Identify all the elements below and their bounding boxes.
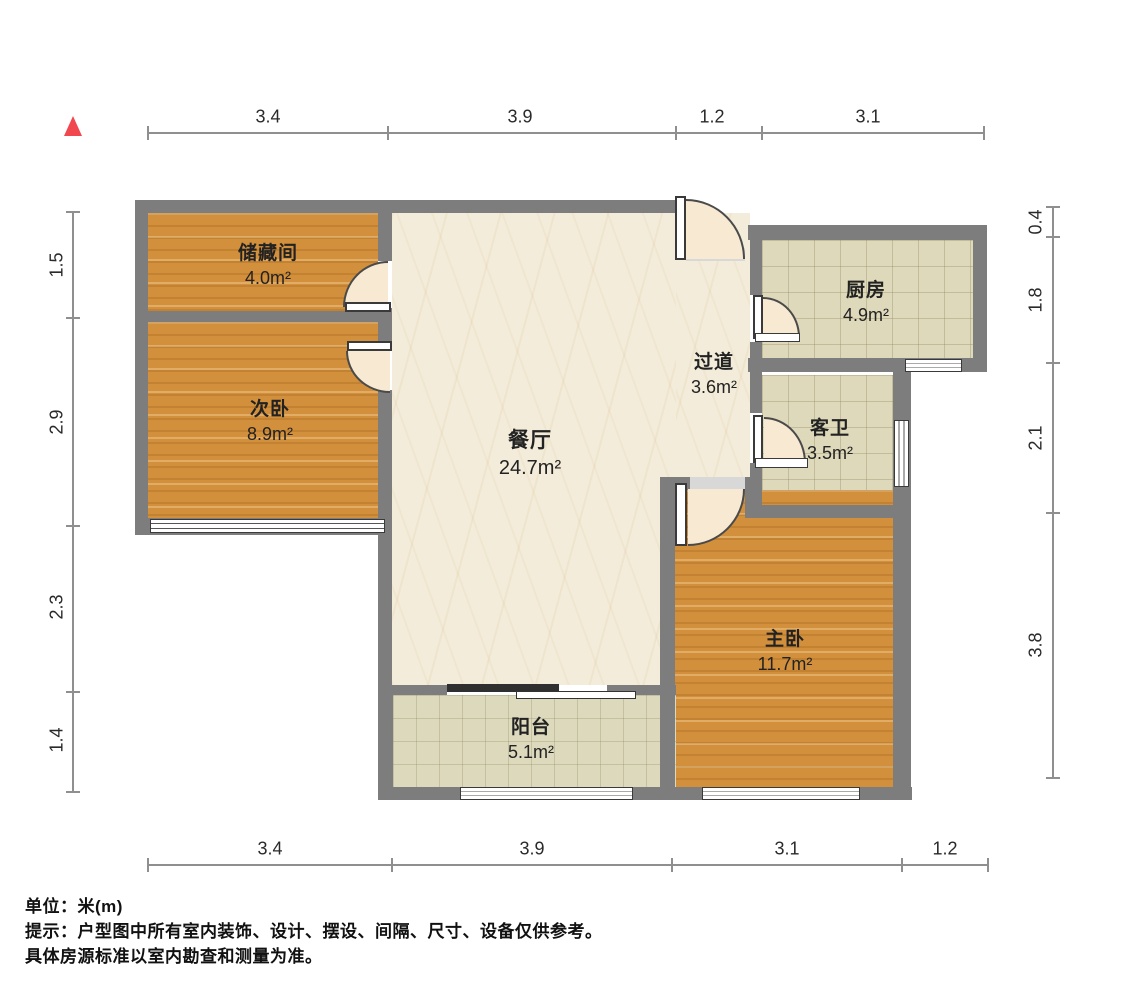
dining-room-area: 24.7m² <box>499 457 561 480</box>
dimension-line-top <box>148 132 984 134</box>
guest-bathroom-area: 3.5m² <box>807 443 853 464</box>
storage-room-area: 4.0m² <box>238 268 298 289</box>
secondary-bedroom-area: 8.9m² <box>247 424 293 445</box>
hallway-label: 过道 3.6m² <box>691 347 737 398</box>
wall-kitchen-left-upper <box>750 225 762 295</box>
balcony-sliding-door-panel-light <box>516 691 636 699</box>
dim-tick <box>1046 777 1060 779</box>
dim-right-4: 3.8 <box>1026 632 1047 657</box>
dim-left-2: 2.9 <box>47 409 68 434</box>
footer-note-line2: 具体房源标准以室内勘查和测量为准。 <box>25 942 323 967</box>
dining-room-name: 餐厅 <box>499 424 561 454</box>
dim-right-3: 2.1 <box>1026 425 1047 450</box>
dim-tick <box>983 126 985 140</box>
kitchen-name: 厨房 <box>843 275 889 302</box>
master-bedroom-name: 主卧 <box>758 624 813 651</box>
dim-left-4: 1.4 <box>47 727 68 752</box>
storage-room-name: 储藏间 <box>238 238 298 265</box>
north-arrow-icon <box>64 116 82 136</box>
dim-left-1: 1.5 <box>47 252 68 277</box>
dim-tick <box>66 791 80 793</box>
dim-left-3: 2.3 <box>47 594 68 619</box>
storage-door-leaf <box>345 302 391 312</box>
dimension-line-left <box>72 212 74 792</box>
wall-balcony-left <box>378 685 393 800</box>
dim-tick <box>671 858 673 872</box>
kitchen-window <box>905 359 962 372</box>
dimension-line-bottom <box>148 864 988 866</box>
entry-door-arc <box>686 199 745 259</box>
dim-tick <box>66 525 80 527</box>
dimension-line-right <box>1052 207 1054 778</box>
dim-tick <box>1046 512 1060 514</box>
bathroom-door-leaf <box>753 415 763 463</box>
guest-bathroom-label: 客卫 3.5m² <box>807 413 853 464</box>
master-bedroom-area: 11.7m² <box>758 654 813 675</box>
dim-bottom-2: 3.9 <box>519 839 544 860</box>
dim-top-3: 1.2 <box>699 107 724 128</box>
storage-room-label: 储藏间 4.0m² <box>238 238 298 289</box>
balcony-name: 阳台 <box>508 712 554 739</box>
master-bedroom-window <box>702 787 860 800</box>
guest-bathroom-name: 客卫 <box>807 413 853 440</box>
secondary-bedroom-window <box>150 519 385 533</box>
dining-room-label: 餐厅 24.7m² <box>499 424 561 480</box>
dim-top-2: 3.9 <box>507 107 532 128</box>
dim-bottom-4: 1.2 <box>932 839 957 860</box>
kitchen-label: 厨房 4.9m² <box>843 275 889 326</box>
wall-kitchen-top <box>748 225 987 240</box>
dim-tick <box>391 858 393 872</box>
master-bedroom-label: 主卧 11.7m² <box>758 624 813 675</box>
dim-top-4: 3.1 <box>855 107 880 128</box>
balcony-label: 阳台 5.1m² <box>508 712 554 763</box>
master-bedroom-door-leaf <box>675 483 687 546</box>
floor-plan-canvas: 储藏间 4.0m² 次卧 8.9m² 餐厅 24.7m² 过道 3.6m² 厨房… <box>0 0 1125 1001</box>
bathroom-window <box>894 420 909 487</box>
footer-note-line1: 提示：户型图中所有室内装饰、设计、摆设、间隔、尺寸、设备仅供参考。 <box>25 917 603 942</box>
dim-tick <box>147 858 149 872</box>
dim-right-2: 1.8 <box>1026 287 1047 312</box>
dim-tick <box>387 126 389 140</box>
wall-top <box>135 200 676 213</box>
hallway-area: 3.6m² <box>691 377 737 398</box>
dim-right-1: 0.4 <box>1026 209 1047 234</box>
dim-tick <box>147 126 149 140</box>
bathroom-door-sill <box>755 458 808 468</box>
dim-bottom-3: 3.1 <box>774 839 799 860</box>
dim-tick <box>901 858 903 872</box>
secondary-bedroom-name: 次卧 <box>247 394 293 421</box>
dim-tick <box>1046 362 1060 364</box>
entry-door-leaf <box>675 196 686 260</box>
footer-unit-line: 单位：米(m) <box>25 892 123 917</box>
secondary-bedroom-door-leaf <box>347 341 392 351</box>
dim-tick <box>987 858 989 872</box>
wall-kitchen-right <box>973 225 987 372</box>
dim-tick <box>675 126 677 140</box>
dim-tick <box>1046 206 1060 208</box>
dim-tick <box>66 211 80 213</box>
dim-bottom-1: 3.4 <box>257 839 282 860</box>
kitchen-area: 4.9m² <box>843 305 889 326</box>
dim-top-1: 3.4 <box>255 107 280 128</box>
balcony-area: 5.1m² <box>508 742 554 763</box>
wall-master-bedroom-top-step <box>745 477 762 518</box>
dim-tick <box>66 317 80 319</box>
secondary-bedroom-label: 次卧 8.9m² <box>247 394 293 445</box>
balcony-window <box>460 787 633 800</box>
wall-master-bedroom-left <box>660 490 675 790</box>
wall-balcony-slider-left <box>393 685 447 695</box>
hallway-name: 过道 <box>691 347 737 374</box>
wall-bathroom-bottom <box>748 505 910 518</box>
dim-tick <box>1046 236 1060 238</box>
wall-left <box>135 200 148 535</box>
dim-tick <box>66 691 80 693</box>
wall-storage-divider <box>148 311 392 322</box>
kitchen-door-sill <box>755 333 800 342</box>
dim-tick <box>761 126 763 140</box>
wall-kitchen-left-mid <box>750 342 762 413</box>
